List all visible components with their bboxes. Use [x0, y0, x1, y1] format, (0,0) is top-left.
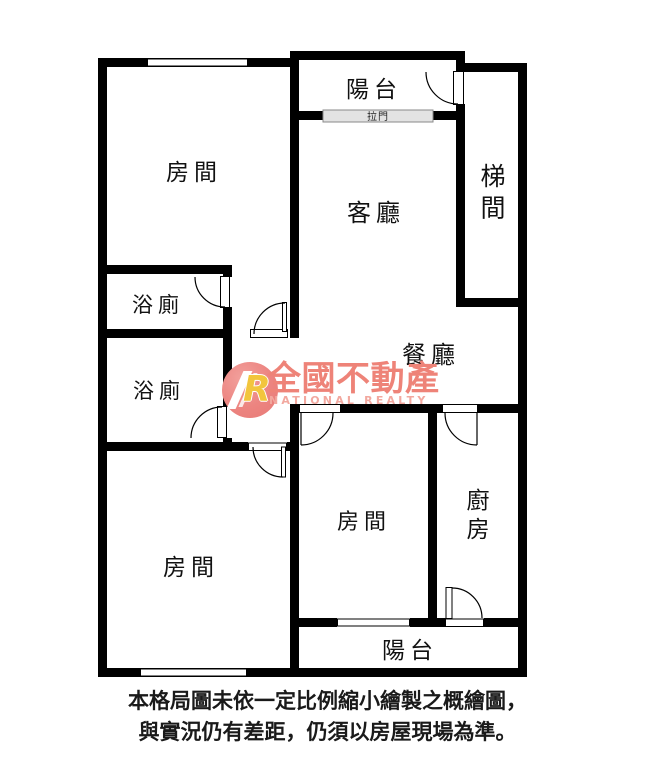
- wall-kitchen-left: [428, 404, 437, 627]
- door-threshold: [446, 619, 484, 627]
- door-leaf: [446, 588, 452, 619]
- door-arc: [301, 413, 333, 445]
- door-leaf: [221, 277, 230, 308]
- door-bathroom-1: [195, 277, 230, 308]
- wall-top-stair: [458, 63, 527, 72]
- window-bedroom-top-left: [148, 59, 248, 66]
- window-bedroom-bottom-left: [141, 669, 247, 676]
- room-labels: 陽台 房間 客廳 梯間 浴廁 浴廁 餐廳 房間 廚房 房間 陽台: [132, 77, 508, 664]
- door-kitchen-balcony: [446, 588, 484, 627]
- room-label-dining-room: 餐廳: [402, 341, 460, 369]
- door-bedroom-bottom-left: [249, 443, 287, 477]
- floor-plan-svg: 拉門: [0, 0, 655, 770]
- room-label-bathroom-2: 浴廁: [133, 379, 185, 403]
- door-arc: [445, 413, 477, 445]
- door-threshold: [251, 330, 288, 338]
- wall-hall-bottom-a: [98, 442, 248, 451]
- wall-slide-right: [433, 111, 465, 120]
- door-leaf: [454, 72, 464, 105]
- room-label-bedroom-middle: 房間: [337, 510, 391, 535]
- wall-bath-right-b: [223, 307, 232, 407]
- wall-midroom-top: [341, 404, 442, 413]
- wall-bath-divider: [98, 329, 232, 338]
- wall-stair-bottom: [458, 298, 527, 307]
- wall-outer-right: [518, 63, 527, 677]
- door-kitchen: [443, 405, 478, 446]
- sliding-door-label: 拉門: [367, 110, 389, 123]
- door-bedroom-middle: [300, 405, 341, 446]
- wall-outer-left: [98, 58, 107, 677]
- wall-stair-left: [456, 104, 465, 307]
- room-label-living-room: 客廳: [347, 199, 405, 227]
- room-label-balcony-top: 陽台: [346, 77, 402, 103]
- door-threshold: [249, 443, 287, 451]
- wall-kitchen-top: [478, 404, 527, 413]
- disclaimer-line-2: 與實況仍有差距，仍須以房屋現場為準。: [0, 717, 655, 748]
- sliding-door: 拉門: [323, 110, 433, 123]
- disclaimer: 本格局圖未依一定比例縮小繪製之概繪圖， 與實況仍有差距，仍須以房屋現場為準。: [0, 686, 655, 748]
- wall-balconyb-top-c: [484, 618, 527, 627]
- room-label-balcony-bottom: 陽台: [382, 638, 438, 664]
- wall-slide-left: [290, 111, 323, 120]
- door-balcony-top: [426, 72, 464, 105]
- door-leaf: [282, 447, 286, 477]
- door-bathroom-2: [191, 407, 227, 439]
- door-arc: [452, 588, 482, 618]
- window-bedroom-middle: [338, 619, 410, 626]
- room-label-bathroom-1: 浴廁: [132, 293, 184, 317]
- walls: [98, 51, 527, 677]
- door-arc: [253, 447, 283, 477]
- room-label-stairwell: 梯間: [480, 162, 507, 222]
- room-label-kitchen: 廚房: [467, 488, 492, 543]
- windows: [141, 59, 410, 676]
- wall-bedroomtl-right: [290, 51, 299, 338]
- wall-balconyb-top-a: [290, 618, 337, 627]
- room-label-bedroom-bottom-left: 房間: [163, 555, 219, 581]
- room-label-bedroom-top-left: 房間: [166, 160, 222, 186]
- wall-bedroomtl-bottom: [98, 265, 232, 274]
- door-bedroom-top-left: [251, 303, 288, 338]
- wall-top-balcony: [290, 51, 465, 60]
- floor-plan-page: 拉門: [0, 0, 655, 770]
- door-threshold: [443, 405, 478, 413]
- wall-hall-bottom-b: [287, 442, 299, 451]
- door-threshold: [300, 405, 341, 413]
- door-leaf: [283, 303, 287, 332]
- wall-balcony-right-a: [456, 51, 465, 72]
- door-leaf: [218, 407, 227, 438]
- disclaimer-line-1: 本格局圖未依一定比例縮小繪製之概繪圖，: [0, 686, 655, 717]
- wall-balconyb-top-b: [410, 618, 446, 627]
